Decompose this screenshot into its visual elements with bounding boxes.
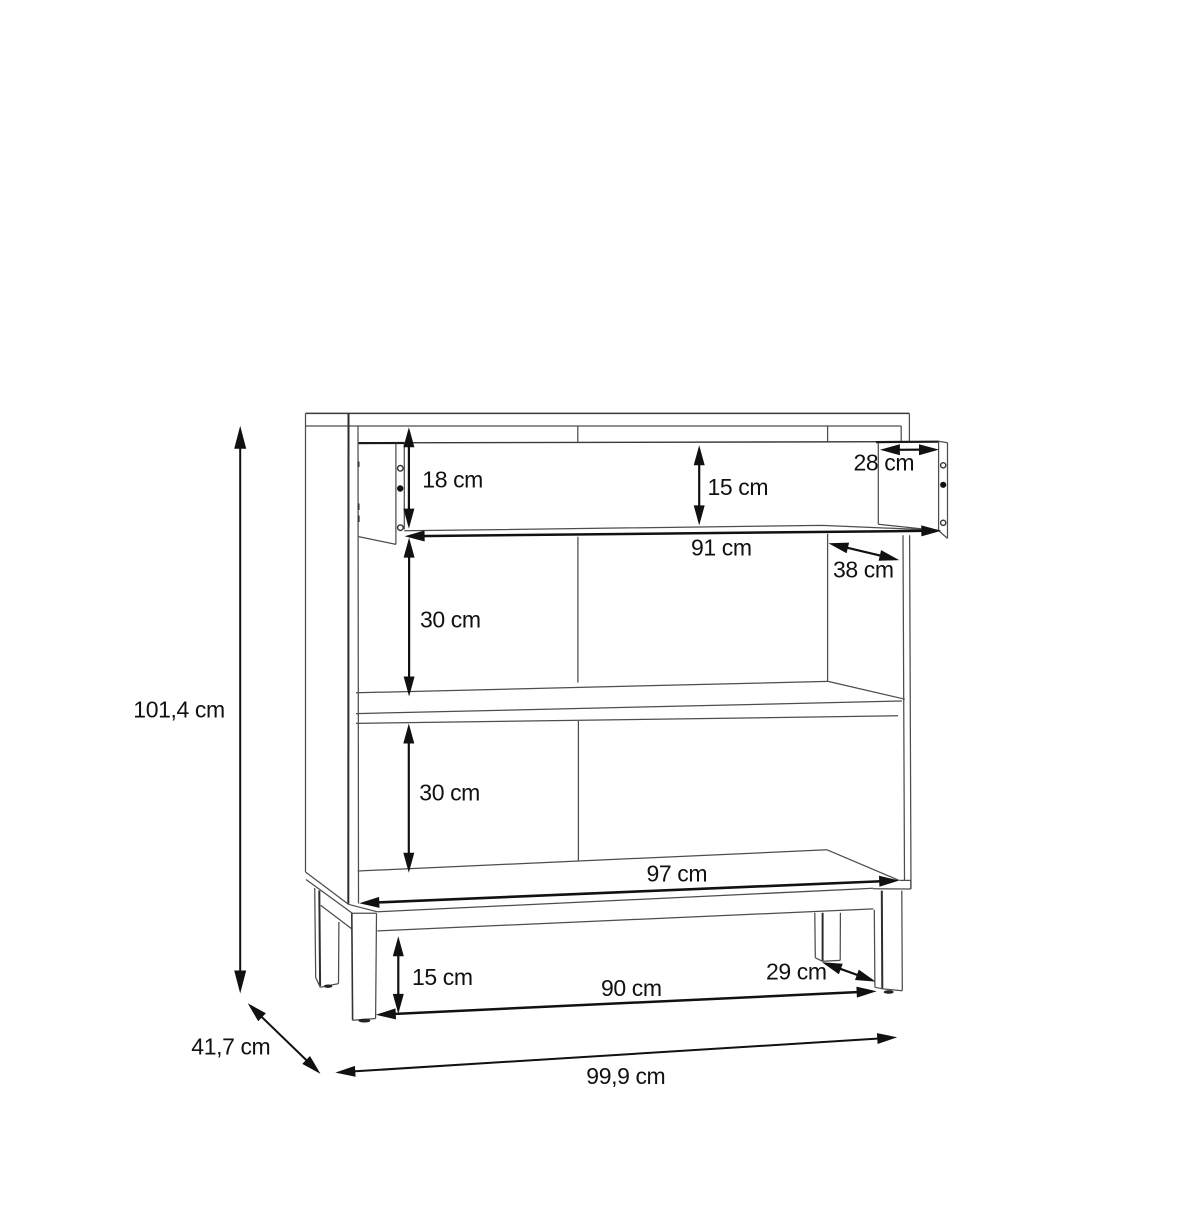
svg-text:29 cm: 29 cm: [766, 959, 827, 985]
svg-text:41,7 cm: 41,7 cm: [191, 1034, 270, 1060]
svg-text:90 cm: 90 cm: [601, 975, 662, 1001]
svg-text:30 cm: 30 cm: [420, 607, 481, 633]
svg-text:30 cm: 30 cm: [419, 779, 480, 805]
svg-text:15 cm: 15 cm: [708, 474, 769, 500]
svg-text:97 cm: 97 cm: [647, 861, 708, 887]
svg-text:15 cm: 15 cm: [412, 964, 473, 990]
svg-text:38 cm: 38 cm: [833, 557, 894, 583]
svg-text:99,9 cm: 99,9 cm: [586, 1063, 665, 1089]
svg-text:28 cm: 28 cm: [854, 449, 915, 475]
svg-text:101,4 cm: 101,4 cm: [133, 696, 224, 722]
svg-text:91 cm: 91 cm: [691, 535, 752, 561]
svg-text:18 cm: 18 cm: [422, 467, 483, 493]
